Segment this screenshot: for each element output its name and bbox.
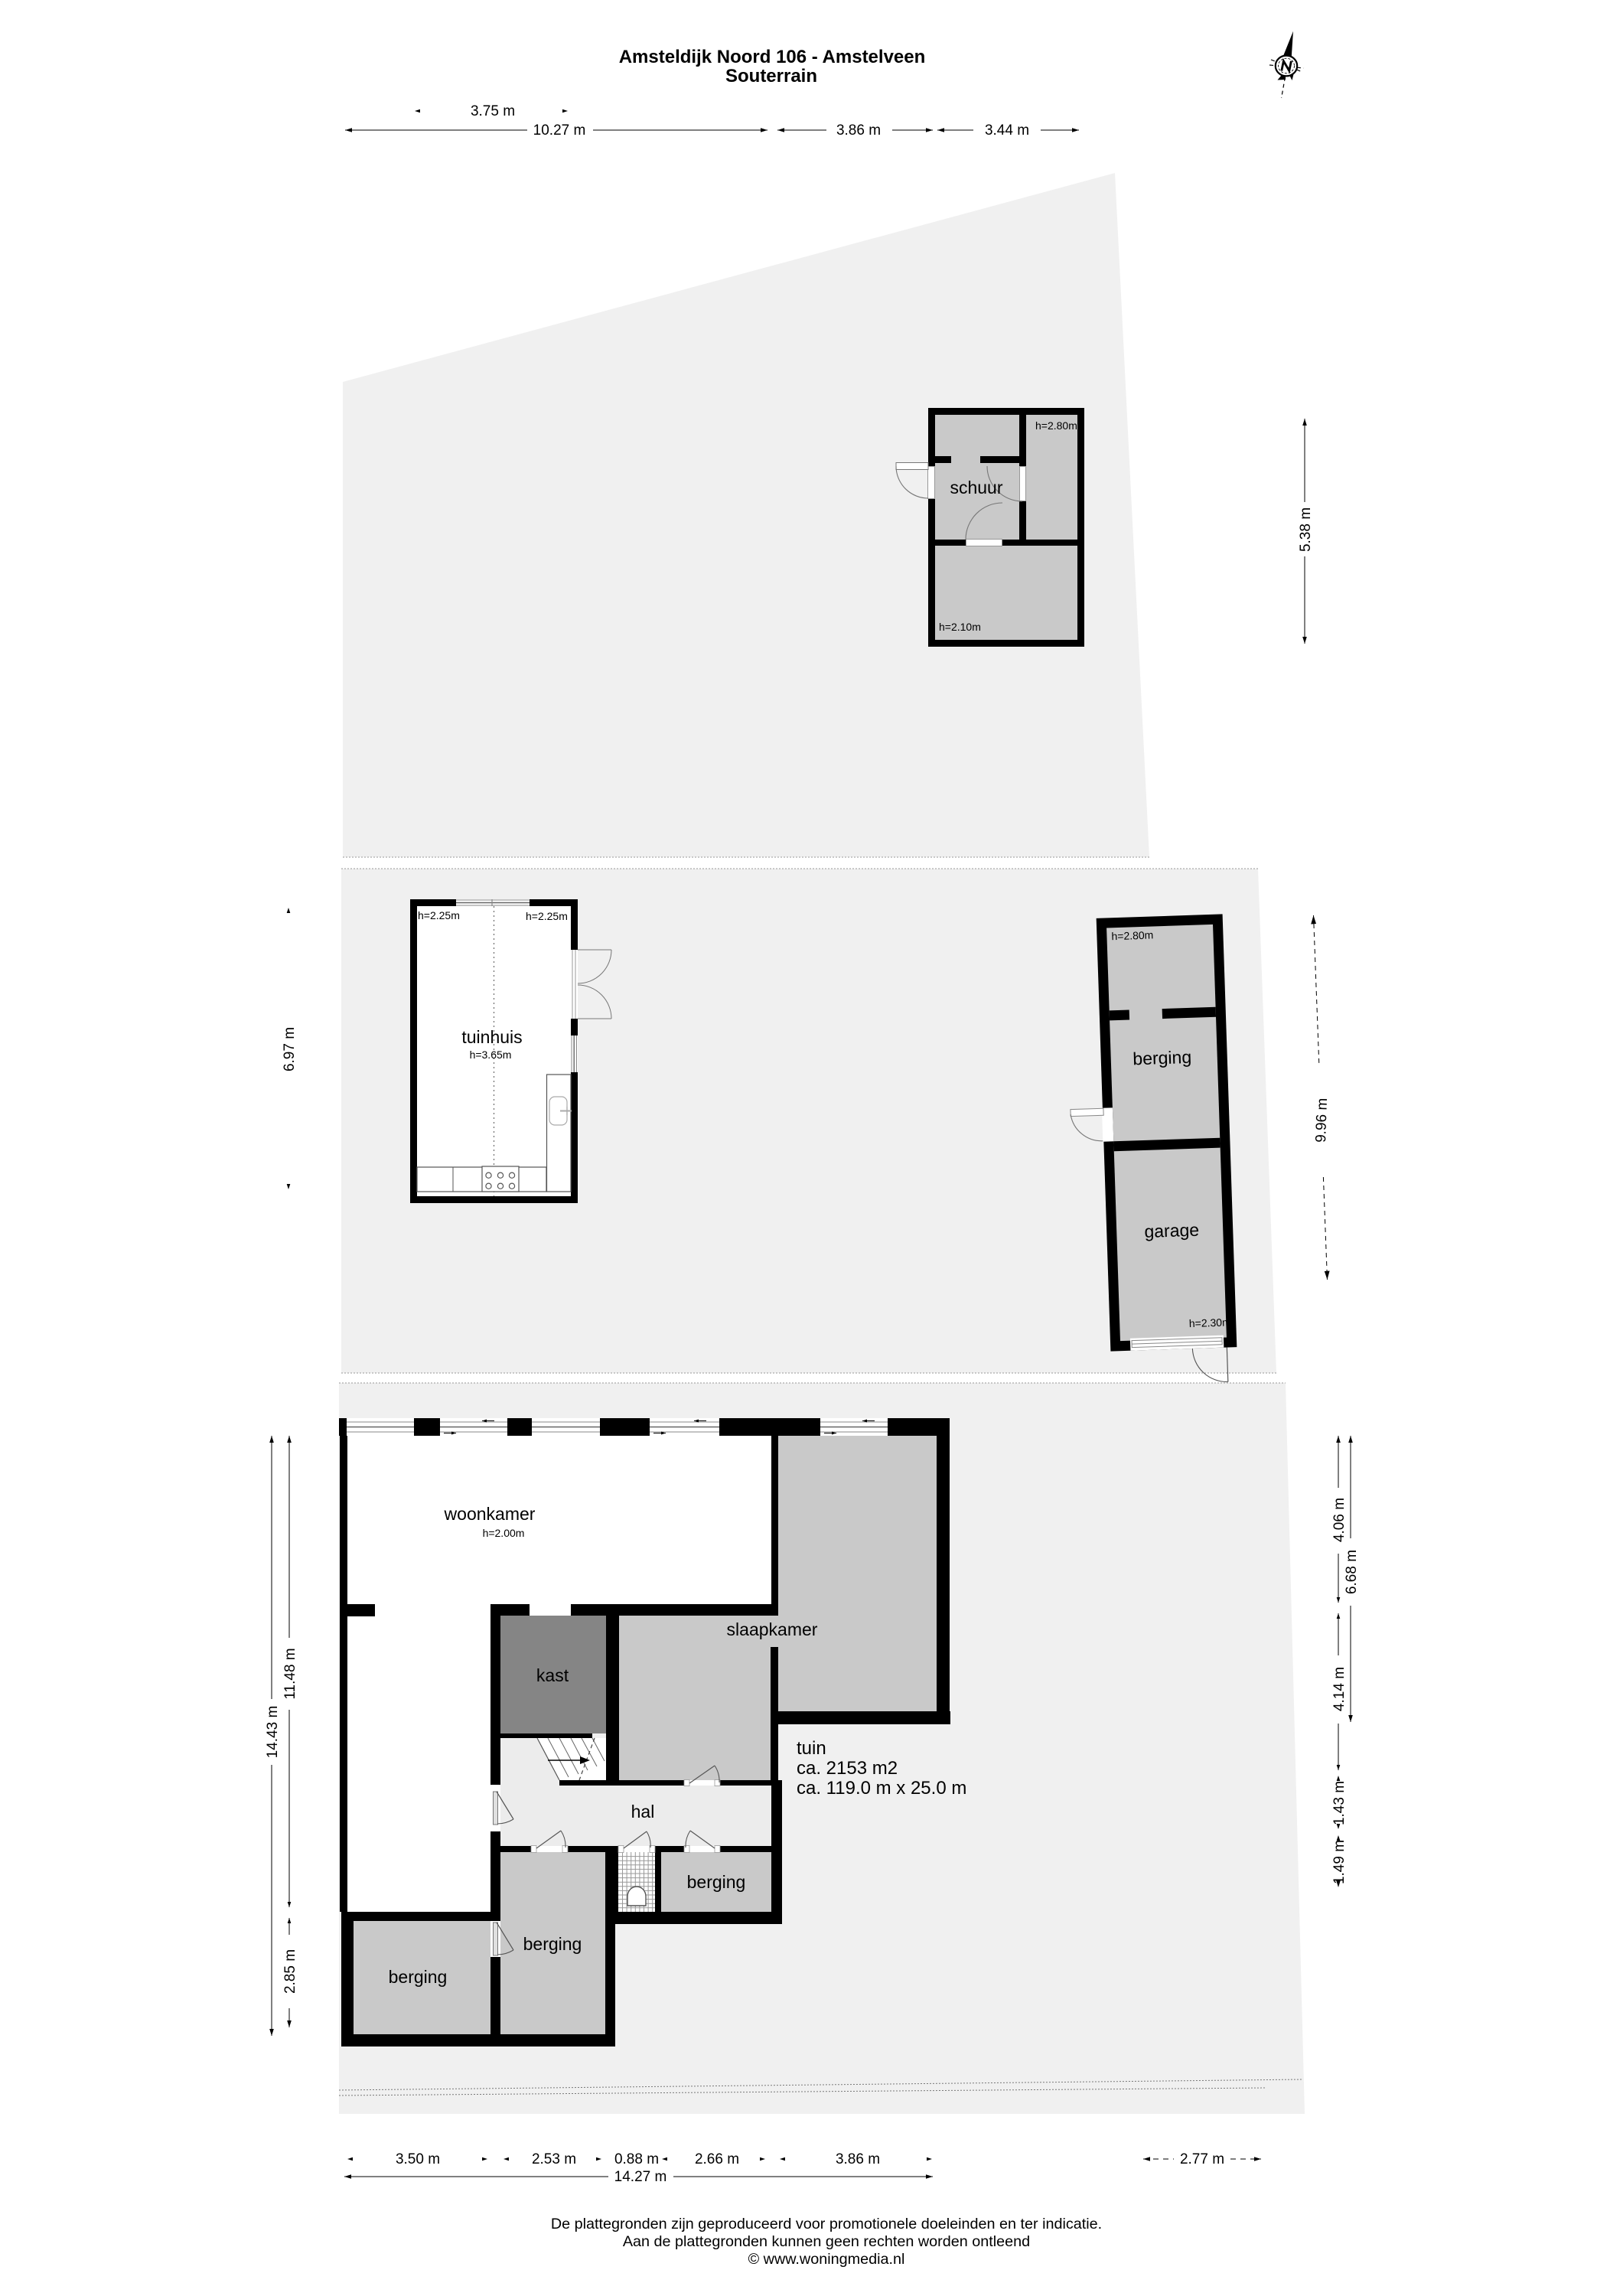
- svg-text:berging: berging: [523, 1934, 582, 1954]
- svg-text:0.88 m: 0.88 m: [614, 2151, 659, 2167]
- svg-text:slaapkamer: slaapkamer: [727, 1619, 818, 1639]
- svg-text:4.14 m: 4.14 m: [1331, 1667, 1348, 1711]
- svg-text:h=2.25m: h=2.25m: [526, 910, 568, 922]
- svg-text:berging: berging: [389, 1967, 448, 1987]
- svg-text:h=2.30m: h=2.30m: [1189, 1316, 1231, 1329]
- svg-text:2.66 m: 2.66 m: [695, 2151, 739, 2167]
- svg-text:10.27 m: 10.27 m: [533, 122, 586, 139]
- svg-text:9.96 m: 9.96 m: [1313, 1097, 1331, 1143]
- svg-text:ca. 119.0 m x 25.0 m: ca. 119.0 m x 25.0 m: [797, 1778, 966, 1799]
- svg-text:6.97 m: 6.97 m: [282, 1027, 298, 1071]
- svg-text:kast: kast: [536, 1665, 569, 1685]
- svg-text:De plattegronden zijn geproduc: De plattegronden zijn geproduceerd voor …: [551, 2216, 1102, 2232]
- svg-text:1.49 m: 1.49 m: [1331, 1840, 1348, 1884]
- svg-text:Aan de plattegronden kunnen ge: Aan de plattegronden kunnen geen rechten…: [623, 2233, 1030, 2250]
- svg-text:h=3.65m: h=3.65m: [470, 1049, 512, 1061]
- svg-text:14.43 m: 14.43 m: [265, 1706, 281, 1759]
- svg-text:h=2.00m: h=2.00m: [483, 1527, 525, 1539]
- svg-text:h=2.80m: h=2.80m: [1035, 419, 1077, 432]
- svg-text:berging: berging: [1133, 1047, 1192, 1069]
- svg-text:1.43 m: 1.43 m: [1331, 1781, 1348, 1825]
- svg-text:11.48 m: 11.48 m: [282, 1648, 298, 1699]
- svg-text:h=2.80m: h=2.80m: [1111, 928, 1153, 942]
- svg-text:tuinhuis: tuinhuis: [461, 1027, 522, 1047]
- svg-text:3.50 m: 3.50 m: [396, 2151, 440, 2167]
- svg-text:2.53 m: 2.53 m: [532, 2151, 576, 2167]
- svg-text:garage: garage: [1144, 1220, 1199, 1241]
- svg-text:schuur: schuur: [950, 478, 1002, 497]
- svg-text:2.77 m: 2.77 m: [1180, 2151, 1224, 2167]
- svg-text:4.06 m: 4.06 m: [1331, 1498, 1348, 1542]
- svg-text:hal: hal: [631, 1802, 655, 1821]
- svg-text:3.44 m: 3.44 m: [985, 122, 1029, 139]
- svg-text:h=2.25m: h=2.25m: [418, 909, 460, 921]
- svg-text:14.27 m: 14.27 m: [614, 2169, 667, 2185]
- svg-text:3.86 m: 3.86 m: [836, 2151, 880, 2167]
- svg-text:5.38 m: 5.38 m: [1298, 507, 1314, 552]
- svg-text:Amsteldijk Noord 106 - Amstelv: Amsteldijk Noord 106 - Amstelveen: [619, 47, 926, 67]
- svg-text:3.75 m: 3.75 m: [471, 103, 515, 119]
- svg-text:© www.woningmedia.nl: © www.woningmedia.nl: [748, 2251, 905, 2268]
- svg-text:3.86 m: 3.86 m: [836, 122, 881, 139]
- svg-text:Souterrain: Souterrain: [725, 66, 817, 86]
- svg-text:berging: berging: [687, 1872, 746, 1892]
- svg-text:h=2.10m: h=2.10m: [939, 621, 981, 633]
- svg-text:ca. 2153 m2: ca. 2153 m2: [797, 1758, 898, 1779]
- svg-text:woonkamer: woonkamer: [444, 1504, 536, 1524]
- svg-text:2.85 m: 2.85 m: [282, 1949, 298, 1994]
- svg-text:6.68 m: 6.68 m: [1344, 1550, 1360, 1594]
- svg-text:tuin: tuin: [797, 1738, 826, 1759]
